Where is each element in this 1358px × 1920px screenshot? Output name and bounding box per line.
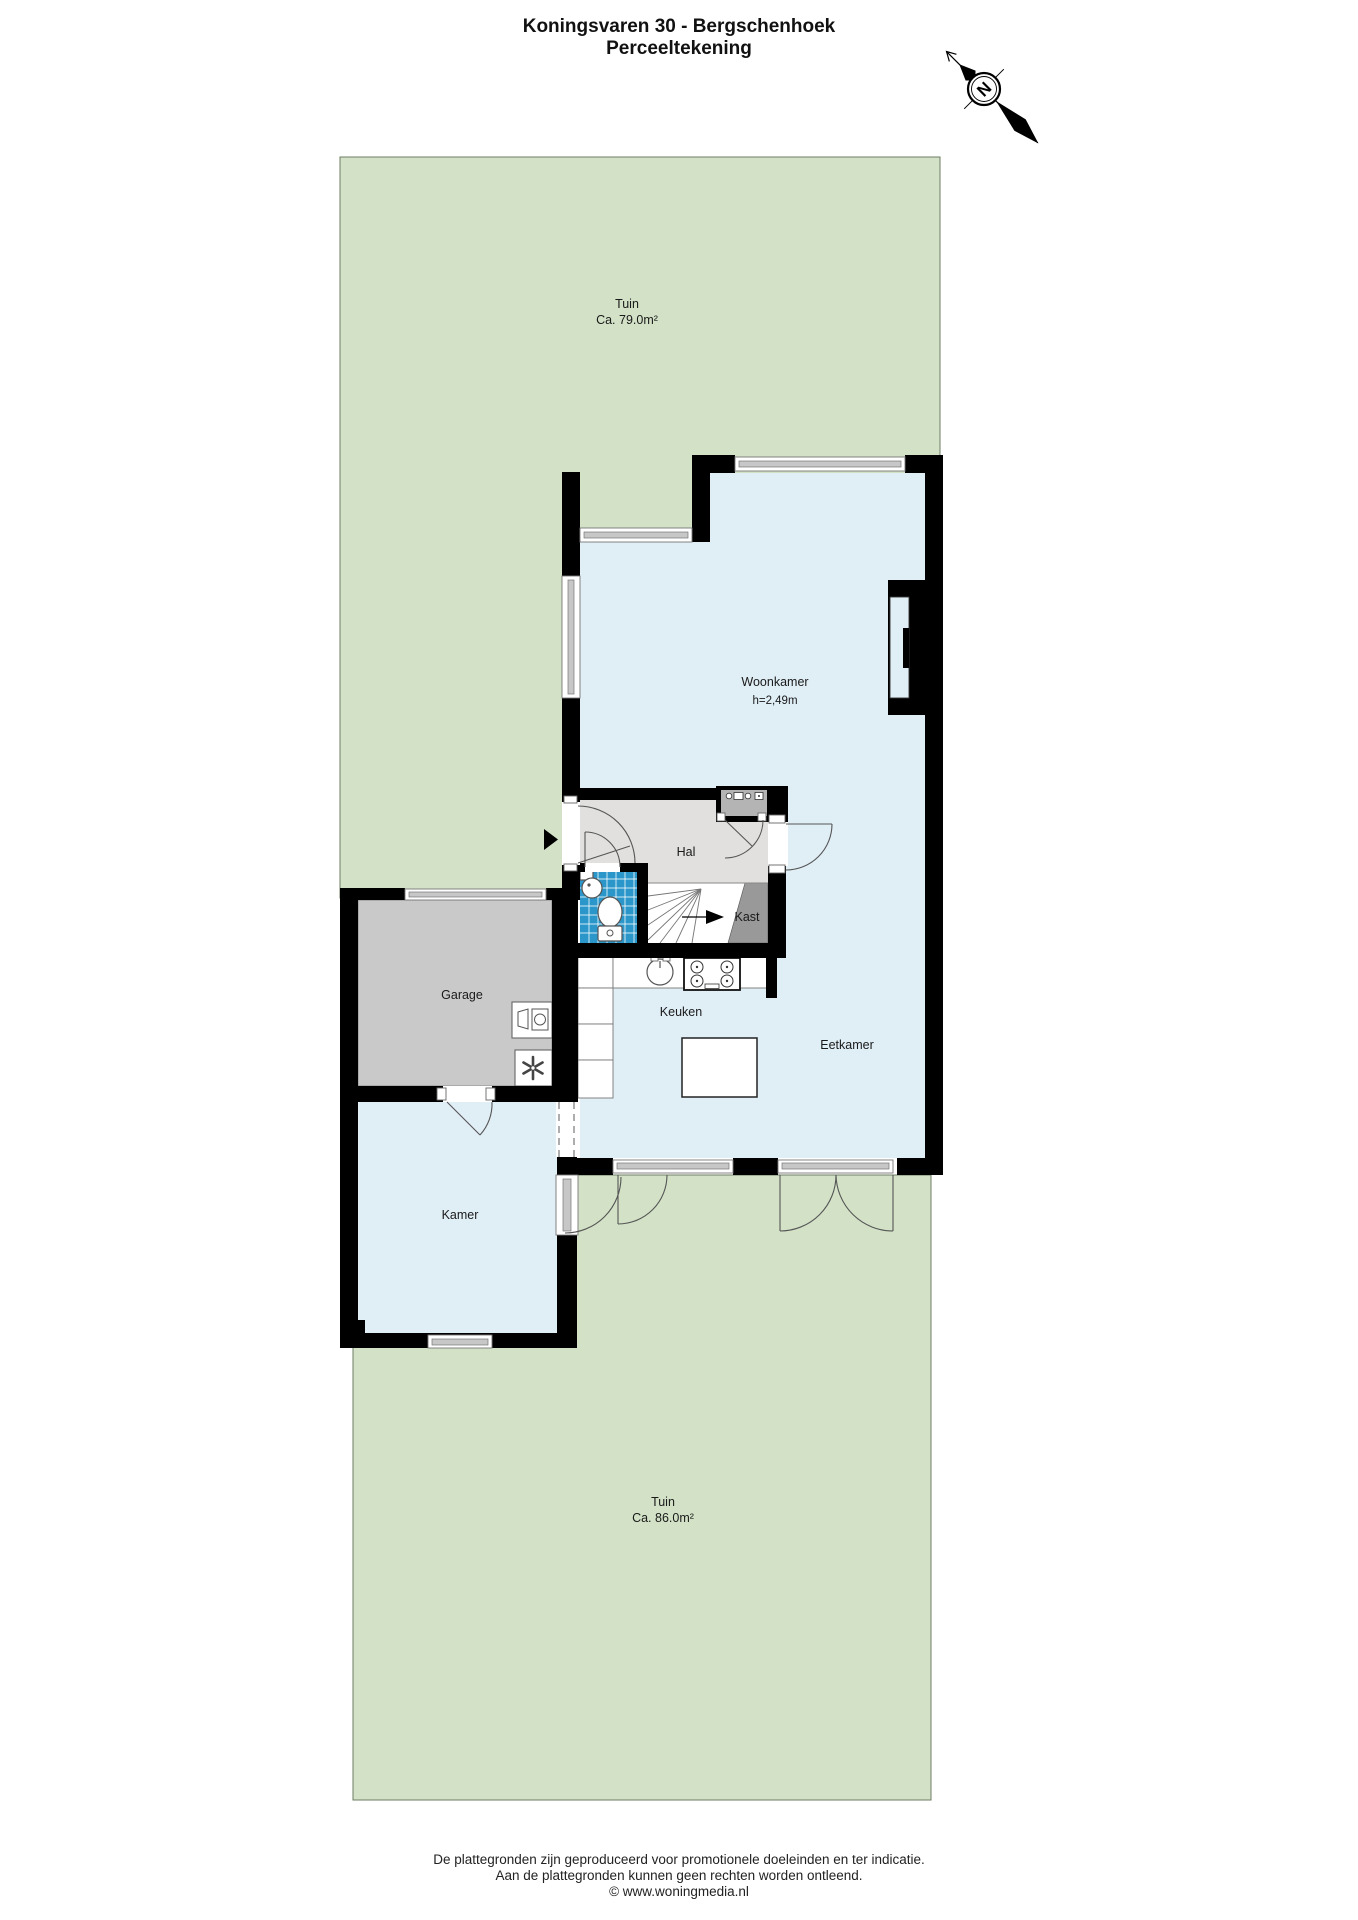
window-eetkamer-south-right [778, 1160, 893, 1173]
window-eetkamer-south-left [613, 1160, 733, 1173]
disclaimer: De plattegronden zijn geproduceerd voor … [0, 1852, 1358, 1900]
eetkamer-label: Eetkamer [820, 1038, 874, 1052]
disclaimer-line-1: De plattegronden zijn geproduceerd voor … [0, 1852, 1358, 1868]
window-woonkamer-step [580, 528, 692, 542]
kast-label: Kast [734, 910, 760, 924]
sink-icon [647, 956, 673, 985]
stove-icon [684, 958, 740, 990]
woonkamer-height: h=2,49m [752, 695, 797, 707]
disclaimer-line-3: © www.woningmedia.nl [0, 1884, 1358, 1900]
wall-niche [890, 597, 909, 698]
ventilation-unit-icon [515, 1050, 552, 1086]
garden-top-area: Ca. 79.0m² [596, 313, 658, 327]
garage-label: Garage [441, 988, 483, 1002]
window-kamer [428, 1335, 492, 1348]
perceeltekening-page: Koningsvaren 30 - Bergschenhoek Perceelt… [0, 0, 1358, 1920]
hal-label: Hal [677, 845, 696, 859]
garden-top-label: Tuin [615, 297, 639, 311]
room-toilet [580, 870, 637, 943]
kitchen-cabinet [578, 1060, 613, 1098]
kitchen-cabinet [578, 988, 613, 1024]
kitchen-cabinet [578, 956, 613, 988]
window-woonkamer-left [562, 576, 580, 698]
kitchen-cabinet [578, 1024, 613, 1060]
washing-machine-icon [512, 1002, 552, 1038]
woonkamer-label: Woonkamer [741, 675, 808, 689]
window-garage [405, 889, 546, 900]
kitchen-island [682, 1038, 757, 1097]
floor-plan-svg: N Tuin Ca. 79.0m² Woonkamer h=2,49m Hal … [0, 0, 1358, 1920]
disclaimer-line-2: Aan de plattegronden kunnen geen rechten… [0, 1868, 1358, 1884]
garden-bottom-area: Ca. 86.0m² [632, 1511, 694, 1525]
keuken-label: Keuken [660, 1005, 702, 1019]
garden-bottom-label: Tuin [651, 1495, 675, 1509]
window-woonkamer-top [735, 457, 905, 471]
compass-north-icon: N [927, 32, 1059, 164]
toilet-icon [598, 897, 622, 941]
open-passage [556, 1102, 578, 1157]
kamer-label: Kamer [442, 1208, 479, 1222]
